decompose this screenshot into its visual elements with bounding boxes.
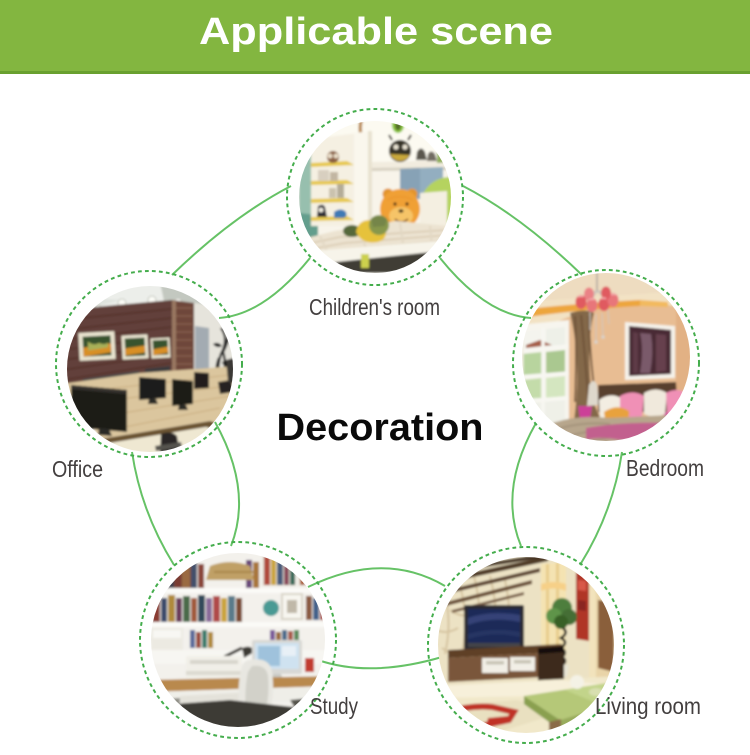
svg-text:Bedroom: Bedroom [626, 455, 704, 481]
svg-text:Living room: Living room [595, 693, 701, 719]
svg-text:Applicable scene: Applicable scene [199, 11, 553, 53]
svg-text:Study: Study [310, 693, 358, 719]
svg-text:Children's room: Children's room [309, 294, 440, 320]
svg-text:Decoration: Decoration [277, 407, 484, 449]
svg-text:Office: Office [52, 456, 103, 482]
